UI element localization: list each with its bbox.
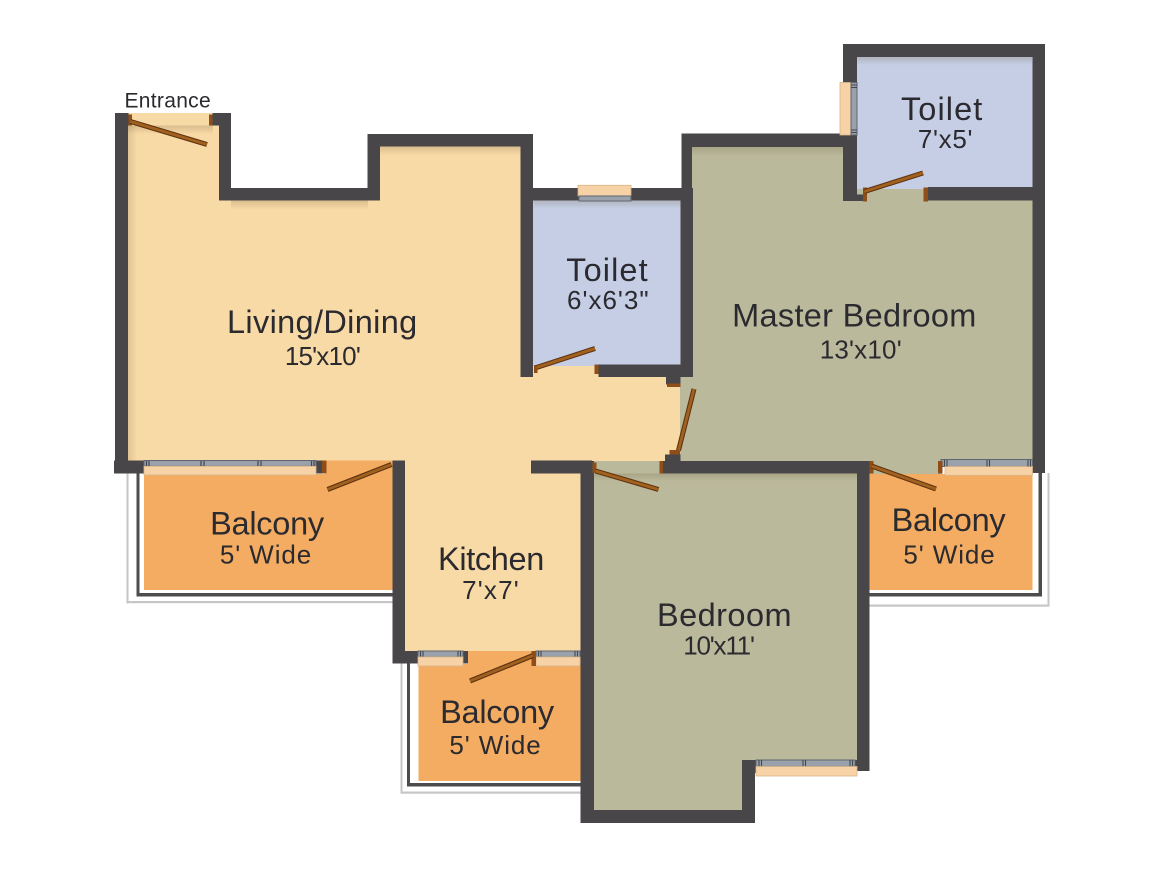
svg-text:Bedroom: Bedroom	[657, 597, 792, 633]
svg-text:Toilet: Toilet	[566, 252, 648, 288]
svg-text:Kitchen: Kitchen	[438, 541, 544, 577]
svg-text:Balcony: Balcony	[210, 506, 325, 542]
svg-text:7'x7': 7'x7'	[462, 575, 520, 605]
svg-text:Master Bedroom: Master Bedroom	[732, 298, 976, 334]
svg-text:Toilet: Toilet	[901, 91, 983, 127]
svg-text:5' Wide: 5' Wide	[220, 540, 312, 570]
svg-text:10'x11': 10'x11'	[683, 631, 754, 661]
svg-text:13'x10': 13'x10'	[820, 335, 902, 365]
svg-text:7'x5': 7'x5'	[918, 124, 973, 154]
svg-text:Balcony: Balcony	[892, 502, 1007, 538]
svg-text:6'x6'3": 6'x6'3"	[567, 285, 650, 315]
svg-text:Living/Dining: Living/Dining	[227, 304, 418, 340]
svg-text:Entrance: Entrance	[125, 90, 211, 113]
svg-text:Balcony: Balcony	[440, 694, 555, 730]
svg-text:15'x10': 15'x10'	[285, 341, 360, 371]
svg-text:5' Wide: 5' Wide	[903, 540, 995, 570]
svg-text:5' Wide: 5' Wide	[449, 730, 541, 760]
